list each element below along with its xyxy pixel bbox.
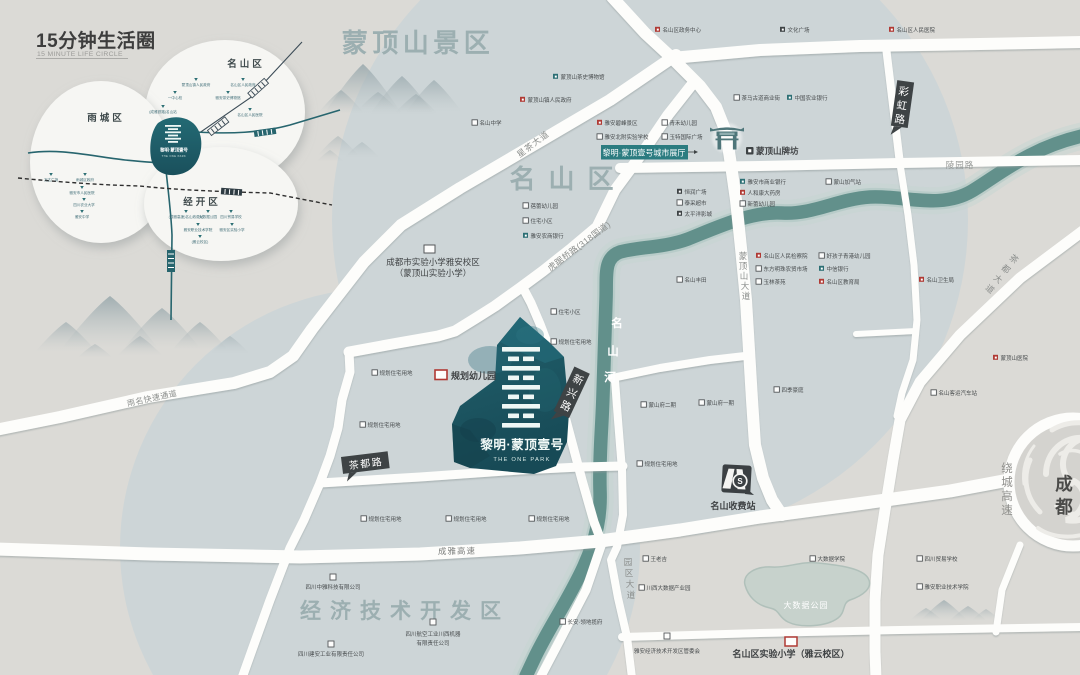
svg-text:S: S — [737, 477, 743, 486]
svg-text:规划住宅用地: 规划住宅用地 — [454, 515, 488, 523]
svg-text:雨城区政府: 雨城区政府 — [76, 177, 94, 182]
svg-text:区: 区 — [625, 568, 634, 578]
svg-text:15 MINUTE LIFE CIRCLE: 15 MINUTE LIFE CIRCLE — [37, 51, 123, 58]
svg-text:茶马古道商业街: 茶马古道商业街 — [742, 94, 781, 102]
svg-text:规划住宅用地: 规划住宅用地 — [380, 369, 414, 377]
svg-text:都: 都 — [1054, 497, 1073, 517]
svg-text:住宅小区: 住宅小区 — [531, 217, 554, 225]
svg-text:王老吉: 王老吉 — [651, 555, 668, 563]
svg-text:名: 名 — [611, 316, 623, 330]
svg-text:四川建安工业有限责任公司: 四川建安工业有限责任公司 — [298, 650, 364, 658]
svg-text:雅安职业技术学院: 雅安职业技术学院 — [184, 227, 213, 232]
svg-text:名山丰田: 名山丰田 — [685, 276, 707, 284]
svg-text:经济技术开发区: 经济技术开发区 — [300, 599, 510, 623]
svg-text:名山区政务中心: 名山区政务中心 — [663, 26, 702, 34]
svg-text:蒙顶山医院: 蒙顶山医院 — [1001, 354, 1029, 362]
svg-text:规划住宅用地: 规划住宅用地 — [559, 338, 593, 346]
svg-text:人和康大药房: 人和康大药房 — [748, 189, 782, 197]
svg-text:蒙顶山茶史博物馆: 蒙顶山茶史博物馆 — [561, 73, 606, 81]
svg-text:雅安中学: 雅安中学 — [75, 214, 90, 219]
svg-text:长安·领地揽府: 长安·领地揽府 — [568, 618, 603, 626]
svg-text:(成雅铁路)名山站: (成雅铁路)名山站 — [149, 109, 177, 114]
svg-text:蒙顶山景区: 蒙顶山景区 — [342, 28, 495, 58]
svg-text:雅安区实验小学: 雅安区实验小学 — [219, 227, 245, 232]
svg-text:规划幼儿园: 规划幼儿园 — [451, 370, 496, 381]
svg-text:园: 园 — [624, 557, 633, 567]
svg-text:住宅小区: 住宅小区 — [559, 308, 582, 316]
svg-text:规划住宅用地: 规划住宅用地 — [368, 421, 402, 429]
svg-text:川西大数据产业园: 川西大数据产业园 — [647, 584, 692, 592]
svg-text:绕: 绕 — [1001, 462, 1013, 475]
svg-text:成都市实验小学雅安校区: 成都市实验小学雅安校区 — [386, 257, 480, 267]
svg-text:名山区人民政府: 名山区人民政府 — [230, 82, 256, 87]
svg-text:蒙山府一期: 蒙山府一期 — [707, 399, 735, 407]
svg-text:蒙顶山镇人民政府: 蒙顶山镇人民政府 — [528, 96, 573, 104]
svg-text:中信银行: 中信银行 — [827, 265, 850, 273]
svg-text:黎明·蒙顶壹号城市展厅: 黎明·蒙顶壹号城市展厅 — [603, 148, 686, 158]
svg-text:蓓蕾幼儿园: 蓓蕾幼儿园 — [531, 202, 559, 210]
svg-text:有限责任公司: 有限责任公司 — [416, 639, 449, 647]
svg-text:THE ONE PARK: THE ONE PARK — [493, 457, 550, 463]
svg-text:成雅高速: 成雅高速 — [438, 546, 476, 557]
svg-text:名山区教育局: 名山区教育局 — [827, 278, 860, 286]
svg-text:顶: 顶 — [739, 261, 748, 271]
svg-text:规划住宅用地: 规划住宅用地 — [369, 515, 403, 523]
svg-text:名山区: 名山区 — [227, 58, 265, 70]
svg-text:规划住宅用地: 规划住宅用地 — [537, 515, 571, 523]
svg-text:道: 道 — [627, 590, 636, 600]
svg-text:四季豪庭: 四季豪庭 — [782, 386, 805, 394]
svg-text:玉特国际广场: 玉特国际广场 — [670, 133, 704, 141]
svg-text:黎明·蒙顶壹号: 黎明·蒙顶壹号 — [160, 147, 188, 154]
svg-text:四川中雅科技有限公司: 四川中雅科技有限公司 — [305, 583, 360, 591]
svg-text:泰采超市: 泰采超市 — [685, 199, 708, 207]
svg-text:成: 成 — [1055, 474, 1073, 494]
svg-text:名山区人民医院: 名山区人民医院 — [897, 26, 936, 34]
svg-text:15分钟生活圈: 15分钟生活圈 — [36, 29, 156, 52]
svg-text:名山区人民医院: 名山区人民医院 — [237, 112, 263, 117]
svg-text:名山中学: 名山中学 — [480, 119, 503, 127]
svg-text:大数据公园: 大数据公园 — [784, 600, 829, 610]
svg-text:雅安市人民医院: 雅安市人民医院 — [69, 190, 95, 195]
svg-text:四川航空工业川西机器: 四川航空工业川西机器 — [405, 630, 461, 638]
svg-text:蒙: 蒙 — [739, 251, 748, 261]
svg-text:四川贸易学校: 四川贸易学校 — [220, 214, 242, 219]
svg-text:雅安农商银行: 雅安农商银行 — [531, 232, 565, 240]
svg-text:太平洋影城: 太平洋影城 — [685, 210, 713, 218]
svg-text:THE ONE PARK: THE ONE PARK — [162, 155, 186, 158]
svg-text:四川贸易学校: 四川贸易学校 — [925, 555, 959, 563]
svg-text:雅安职业技术学院: 雅安职业技术学院 — [925, 583, 970, 591]
svg-text:青禾幼儿园: 青禾幼儿园 — [670, 119, 698, 127]
svg-text:陵园路: 陵园路 — [946, 160, 975, 170]
svg-text:恒润广场: 恒润广场 — [685, 188, 708, 196]
svg-text:黎明·蒙顶壹号: 黎明·蒙顶壹号 — [480, 437, 563, 452]
svg-text:蒙顶山镇人民政府: 蒙顶山镇人民政府 — [182, 82, 211, 87]
svg-text:名山客运汽车站: 名山客运汽车站 — [939, 389, 978, 397]
svg-text:文化广场: 文化广场 — [788, 26, 811, 34]
svg-text:名山收费站: 名山收费站 — [710, 500, 755, 511]
svg-text:雨城区: 雨城区 — [87, 112, 125, 124]
svg-text:河: 河 — [604, 370, 616, 384]
svg-text:城: 城 — [1001, 476, 1013, 489]
svg-text:名山卫生局: 名山卫生局 — [927, 276, 955, 284]
svg-text:山: 山 — [740, 271, 749, 281]
svg-text:大数据公园: 大数据公园 — [199, 214, 217, 219]
svg-text:蒙山府二期: 蒙山府二期 — [649, 401, 677, 409]
svg-text:四川农业大学: 四川农业大学 — [73, 202, 95, 207]
svg-text:雅安北附实验学校: 雅安北附实验学校 — [605, 133, 650, 141]
svg-text:(雅云校区): (雅云校区) — [192, 239, 209, 244]
svg-text:名山区: 名山区 — [509, 164, 626, 194]
svg-text:东方明珠农贸市场: 东方明珠农贸市场 — [764, 265, 809, 273]
svg-text:道: 道 — [742, 291, 751, 301]
svg-text:经开区: 经开区 — [183, 196, 221, 208]
svg-text:速: 速 — [1001, 504, 1013, 517]
svg-text:山: 山 — [607, 344, 619, 358]
svg-text:雅安经济技术开发区管委会: 雅安经济技术开发区管委会 — [634, 647, 701, 655]
svg-text:一中心校: 一中心校 — [168, 95, 183, 100]
svg-text:大: 大 — [741, 281, 750, 291]
svg-text:大数据学院: 大数据学院 — [818, 555, 846, 563]
svg-text:雅安茶史博物馆: 雅安茶史博物馆 — [215, 95, 241, 100]
svg-text:新蕾幼儿园: 新蕾幼儿园 — [748, 200, 776, 208]
svg-text:蒙顶山牌坊: 蒙顶山牌坊 — [756, 146, 799, 156]
svg-text:好孩子青港幼儿园: 好孩子青港幼儿园 — [827, 252, 872, 260]
svg-text:雅安市商业银行: 雅安市商业银行 — [748, 178, 787, 186]
svg-text:名山区人民检察院: 名山区人民检察院 — [764, 252, 809, 260]
svg-text:玉林茶苑: 玉林茶苑 — [764, 278, 787, 286]
svg-text:万达广场: 万达广场 — [44, 177, 59, 182]
svg-text:大: 大 — [626, 579, 635, 589]
svg-text:高: 高 — [1001, 489, 1013, 503]
svg-text:中国农业银行: 中国农业银行 — [795, 94, 829, 102]
svg-text:名山区实验小学（雅云校区）: 名山区实验小学（雅云校区） — [732, 648, 849, 659]
svg-text:（蒙顶山实验小学）: （蒙顶山实验小学） — [395, 268, 472, 278]
svg-text:规划住宅用地: 规划住宅用地 — [645, 460, 679, 468]
svg-text:雅安碧峰景区: 雅安碧峰景区 — [605, 119, 639, 127]
svg-text:蒙山加气站: 蒙山加气站 — [834, 178, 862, 186]
